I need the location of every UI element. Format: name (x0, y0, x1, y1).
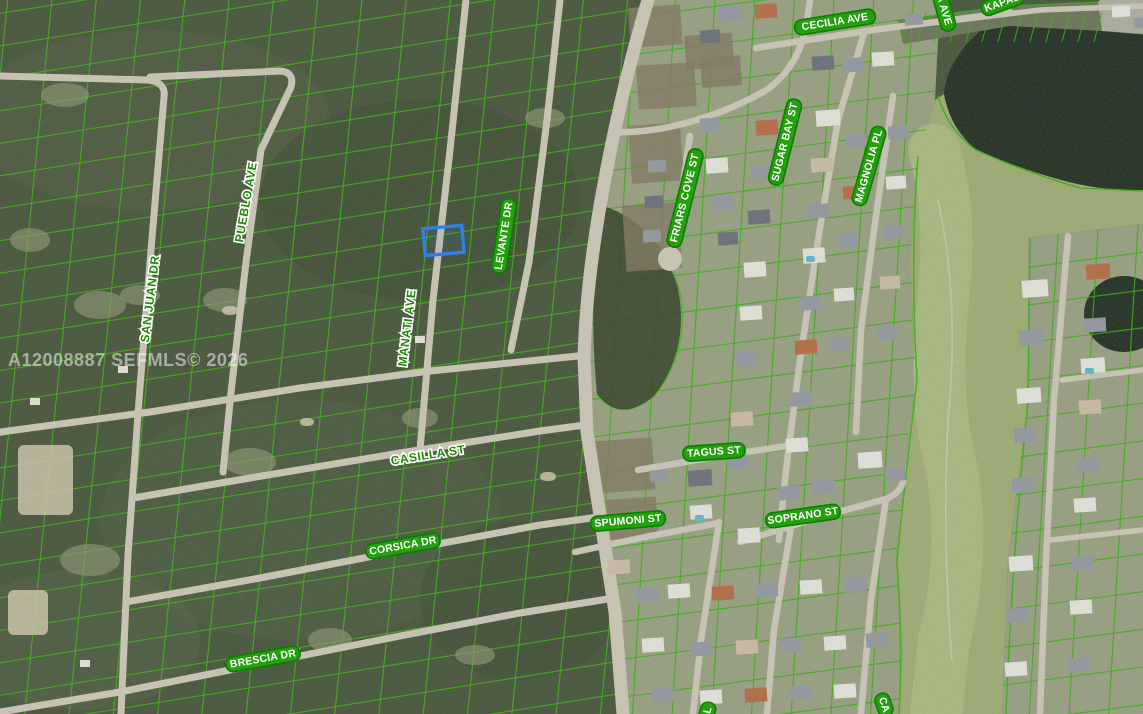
house-roof (650, 469, 669, 482)
house-roof (748, 209, 771, 225)
house-roof (1134, 18, 1143, 29)
house-roof (642, 637, 665, 653)
house-roof (815, 109, 840, 127)
house-roof (1007, 607, 1030, 623)
house-roof (652, 687, 675, 703)
house-roof (812, 479, 835, 495)
house-roof (636, 587, 659, 603)
house-roof (857, 451, 882, 469)
house-roof (842, 57, 865, 73)
house-roof (756, 119, 779, 135)
house-roof (1021, 279, 1048, 298)
house-roof (1017, 387, 1042, 404)
house-roof (700, 117, 721, 131)
house-roof (883, 225, 904, 239)
house-roof (877, 325, 898, 339)
house-roof (844, 577, 867, 593)
house-roof (866, 632, 889, 648)
house-roof (888, 125, 909, 139)
map-screenshot: CECILIA AVEKAPALA AVESUGAR BAY STMAGNOLI… (0, 0, 1143, 714)
house-roof (700, 29, 721, 43)
house-roof (838, 233, 859, 247)
house-roof (718, 5, 743, 22)
house-roof (1005, 661, 1028, 677)
house-roof (795, 339, 818, 355)
house-roof (712, 585, 735, 601)
house-roof (643, 229, 662, 242)
house-roof (811, 157, 834, 173)
house-roof (745, 687, 768, 703)
house-roof (1084, 317, 1107, 333)
house-roof (824, 635, 847, 651)
house-roof (800, 579, 823, 595)
house-roof (1112, 5, 1131, 17)
house-roof (834, 287, 855, 301)
house-roof (1070, 599, 1093, 615)
house-roof (834, 683, 857, 699)
house-roof (706, 157, 729, 173)
house-roof (1012, 477, 1035, 493)
house-roof (755, 3, 778, 19)
house-roof (1014, 427, 1037, 443)
house-roof (1009, 555, 1034, 572)
house-roof (738, 527, 761, 543)
house-roof (744, 261, 767, 277)
house-roof (799, 295, 822, 311)
house-roof (736, 351, 759, 367)
house-roof (886, 175, 907, 189)
mls-watermark: A12008887 SEFMLS© 2026 (8, 350, 248, 370)
house-roof (1068, 657, 1091, 673)
house-roof (1072, 555, 1095, 571)
house-roof (645, 195, 664, 208)
house-roof (648, 159, 667, 172)
house-roof (687, 469, 712, 487)
house-roof (905, 13, 924, 25)
house-roof (885, 467, 906, 481)
house-roof (1074, 497, 1097, 513)
house-roof (736, 639, 759, 655)
subject-parcel-highlight (423, 225, 464, 255)
house-roof (807, 203, 830, 219)
house-roof (790, 391, 813, 407)
house-roof (790, 685, 813, 701)
street-label-tagus-st: TAGUS ST (682, 442, 745, 461)
house-roof (1019, 329, 1044, 346)
house-roof (756, 582, 779, 598)
cul-de-sac (658, 247, 682, 271)
house-roof (1077, 457, 1100, 473)
house-roof (718, 231, 739, 245)
house-roof (1079, 399, 1102, 415)
house-roof (778, 485, 801, 501)
house-roof (830, 337, 851, 351)
house-roof (872, 51, 895, 67)
house-roof (740, 305, 763, 321)
house-roof (668, 583, 691, 599)
house-roof (1086, 263, 1111, 280)
house-roof (731, 411, 754, 427)
house-roof (846, 133, 867, 147)
house-roof (812, 55, 835, 71)
house-roof (786, 437, 809, 453)
aerial-parcel-map: CECILIA AVEKAPALA AVESUGAR BAY STMAGNOLI… (0, 0, 1143, 714)
house-roof (608, 559, 631, 575)
house-roof (780, 637, 803, 653)
house-roof (690, 641, 713, 657)
house-roof (712, 195, 735, 211)
house-roof (880, 275, 901, 289)
